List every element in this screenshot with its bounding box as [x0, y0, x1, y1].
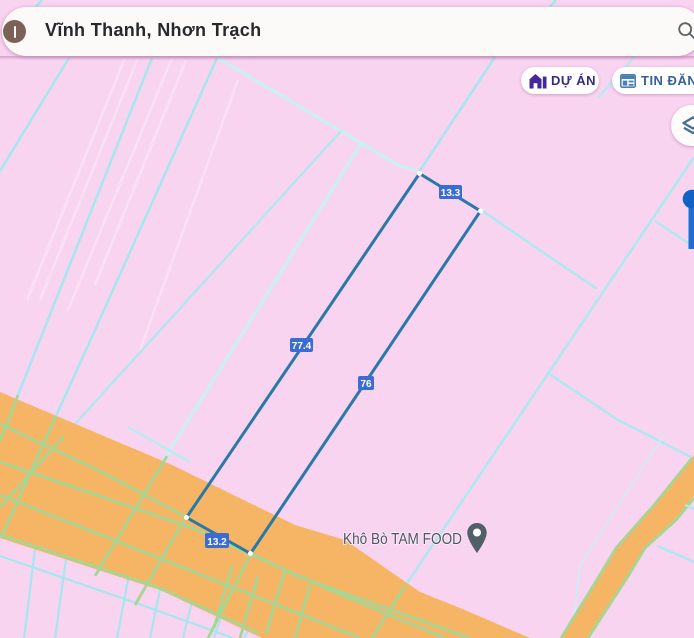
svg-text:77.4: 77.4 [292, 341, 312, 352]
svg-text:13.2: 13.2 [207, 537, 227, 548]
svg-text:13.3: 13.3 [441, 188, 461, 199]
svg-text:76: 76 [360, 379, 372, 390]
svg-text:Khô Bò TAM FOOD: Khô Bò TAM FOOD [343, 531, 462, 548]
